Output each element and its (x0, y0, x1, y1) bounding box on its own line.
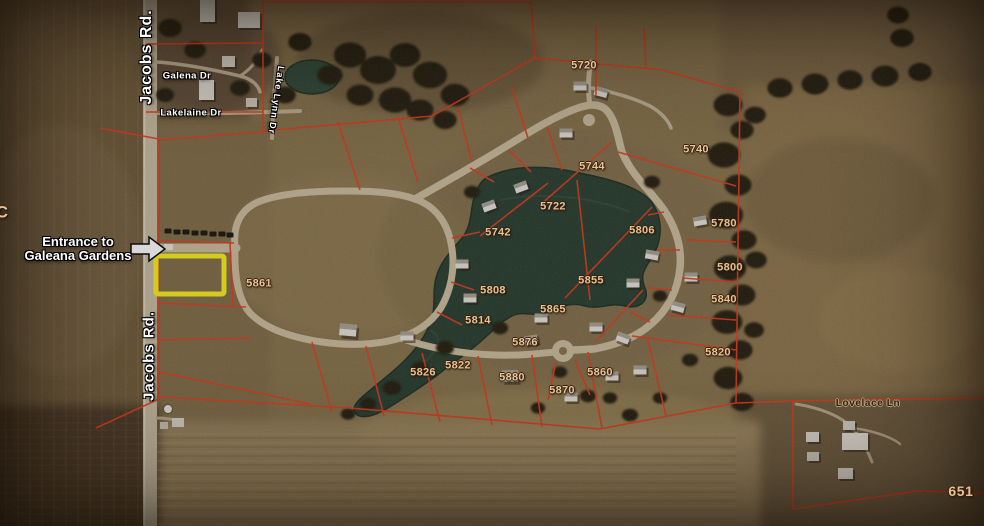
parcel-label: 5722 (540, 202, 566, 213)
parcel-label: 5808 (480, 286, 506, 297)
parcel-label: 5780 (711, 219, 737, 230)
parcel-label: 5814 (465, 316, 491, 327)
street-label-galena-dr: Galena Dr (163, 71, 211, 81)
parcel-label: 5822 (445, 361, 471, 372)
parcel-label-651: 651 (948, 484, 973, 498)
parcel-label: 5744 (579, 162, 605, 173)
parcel-label: 5806 (629, 226, 655, 237)
parcel-label: 5740 (683, 145, 709, 156)
parcel-label: 5720 (571, 61, 597, 72)
parcel-label: 5865 (540, 305, 566, 316)
parcel-label: 5860 (587, 368, 613, 379)
street-label-jacobs-rd-bottom: Jacobs Rd. (142, 311, 157, 401)
street-label-lakelaine-dr: Lakelaine Dr (160, 108, 221, 118)
aerial-plat-map: Jacobs Rd. Jacobs Rd. Galena Dr Lakelain… (0, 0, 984, 526)
parcel-label: 5826 (410, 368, 436, 379)
entrance-annotation-line2: Galeana Gardens (25, 249, 132, 263)
parcel-label: 5880 (499, 373, 525, 384)
parcel-label: 5855 (578, 276, 604, 287)
entrance-annotation: Entrance to Galeana Gardens (25, 235, 132, 263)
parcel-label: 5840 (711, 295, 737, 306)
parcel-label: 5820 (705, 348, 731, 359)
parcel-label: 5861 (246, 279, 272, 290)
parcel-label: 5870 (549, 386, 575, 397)
entrance-annotation-line1: Entrance to (25, 235, 132, 249)
street-label-lovelace-ln: Lovelace Ln (836, 399, 900, 409)
parcel-label: 5876 (512, 338, 538, 349)
parcel-label: 5800 (717, 263, 743, 274)
parcel-label: 5742 (485, 228, 511, 239)
partial-edge-label: C (0, 204, 8, 221)
street-label-jacobs-rd-top: Jacobs Rd. (139, 9, 155, 104)
